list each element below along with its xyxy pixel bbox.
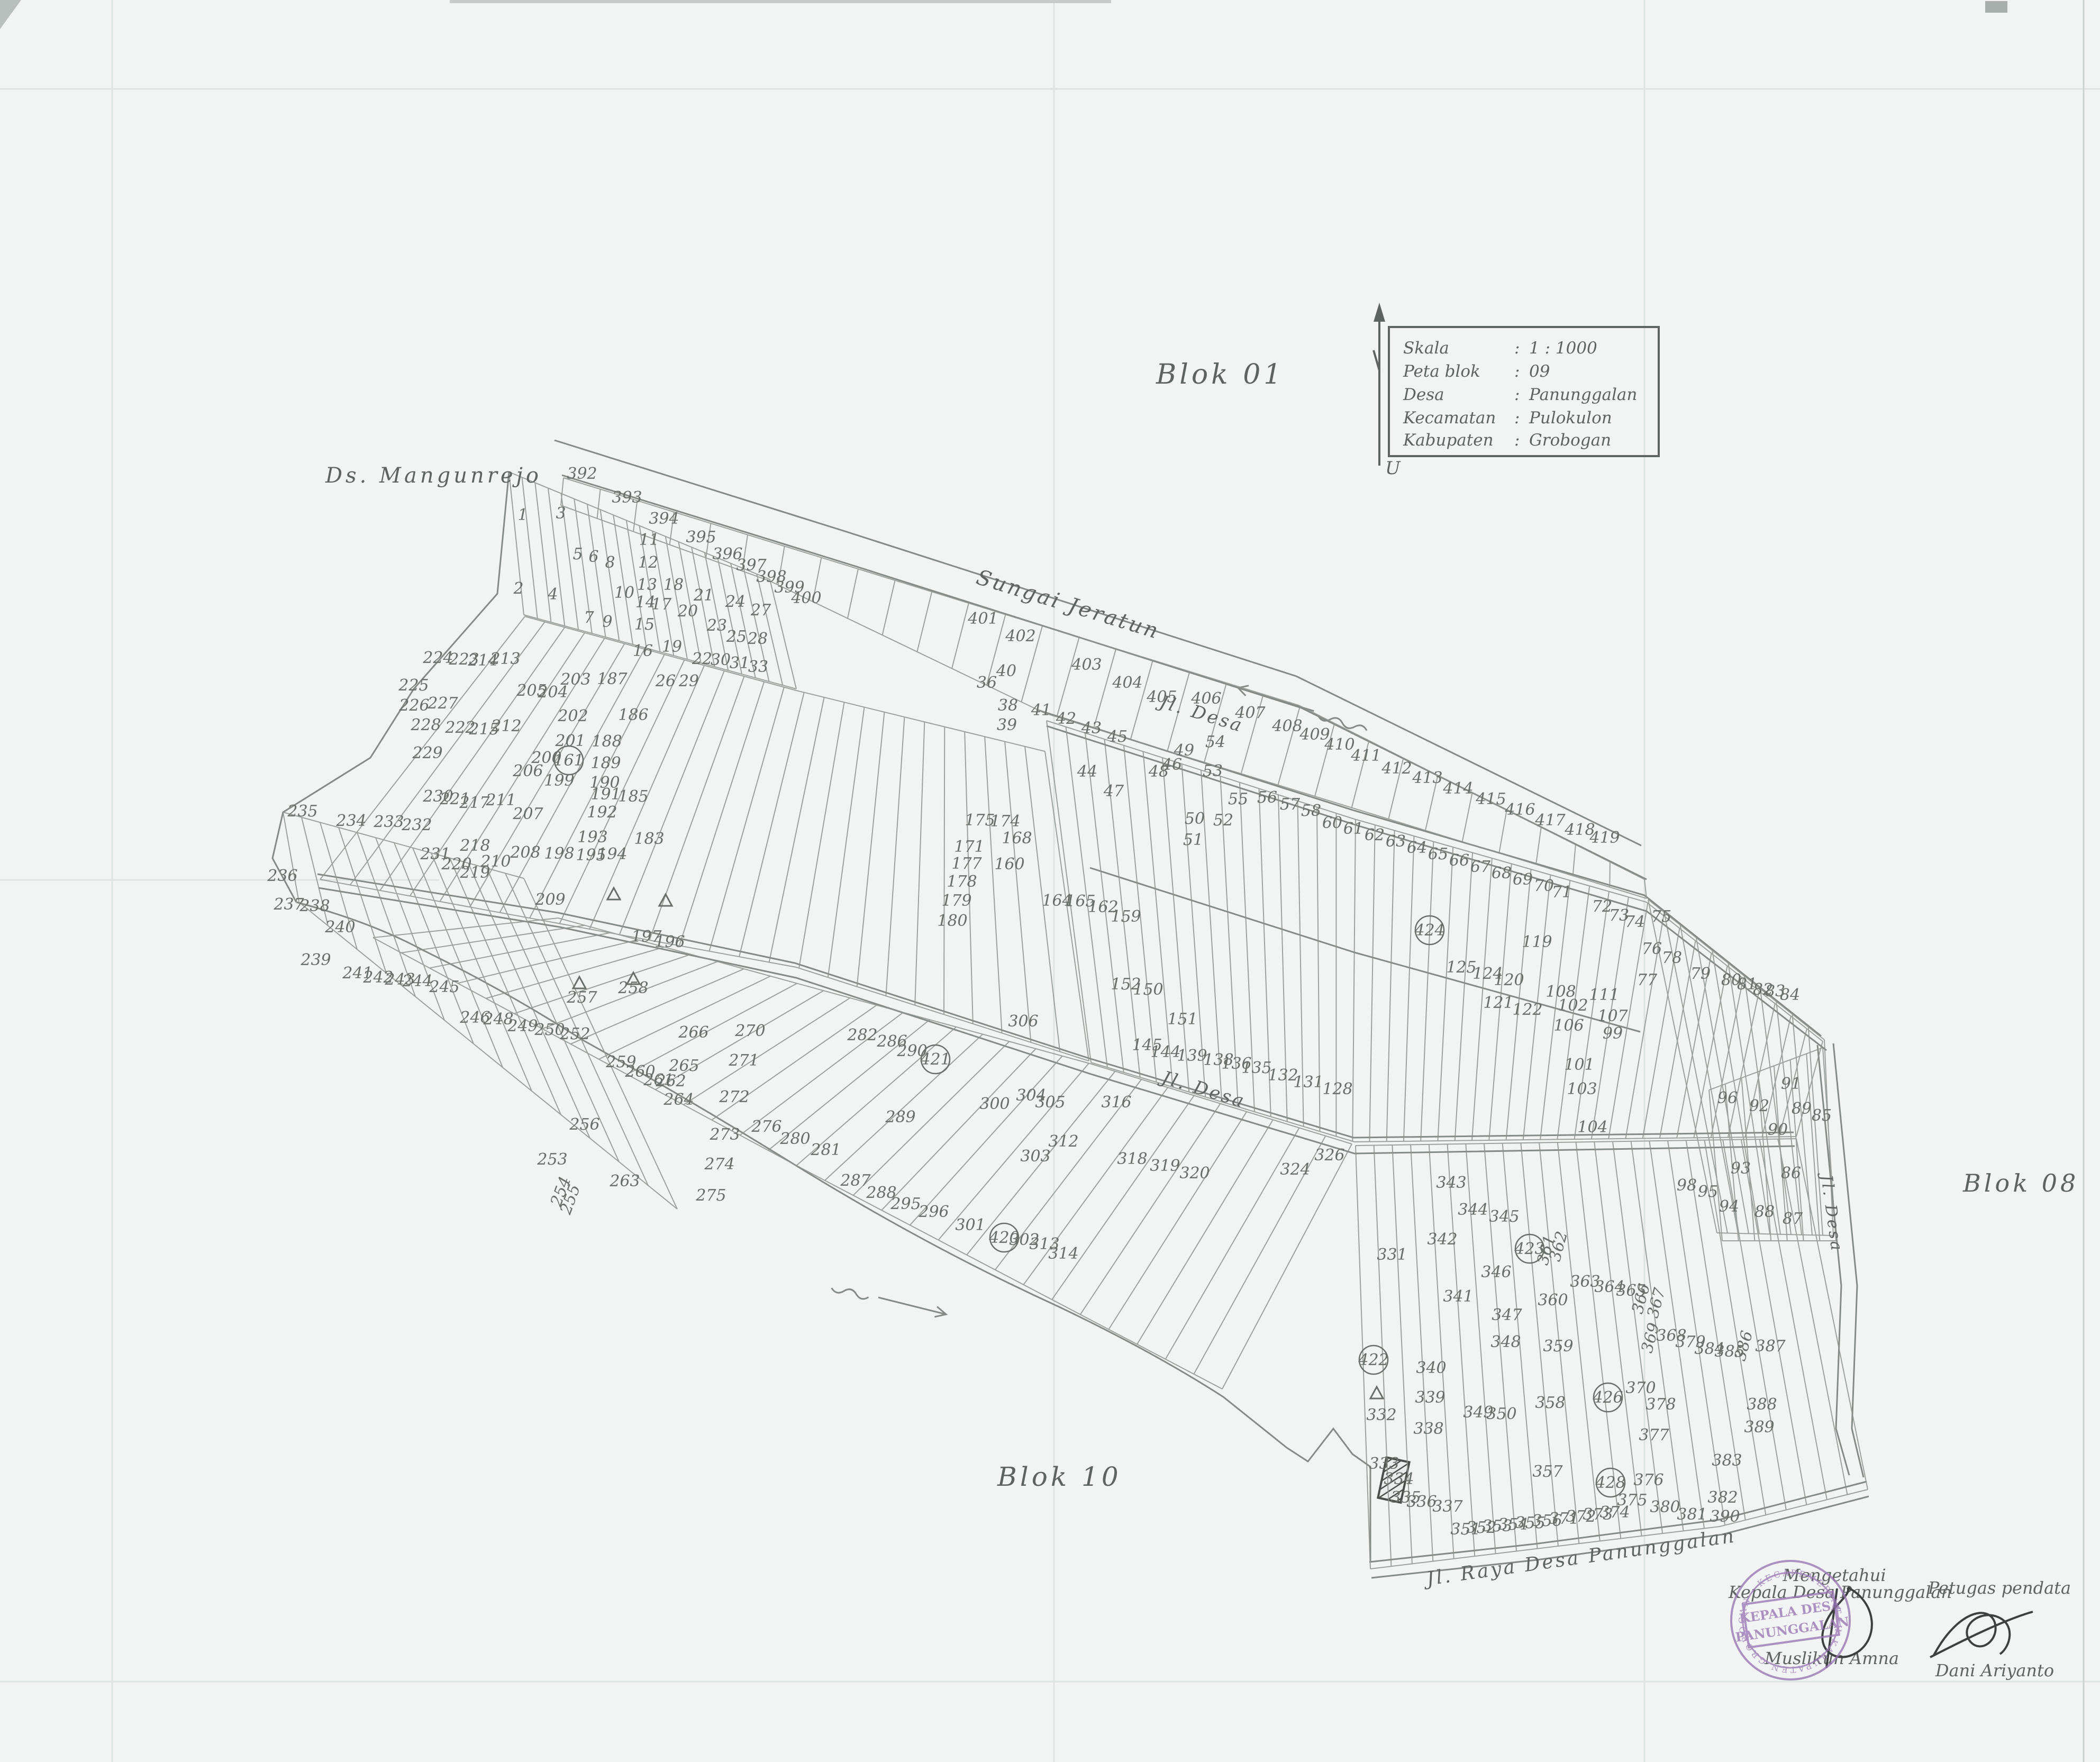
legend-value-desa: Panunggalan xyxy=(1529,385,1637,404)
parcel-number: 312 xyxy=(1048,1132,1078,1151)
parcel-number: 256 xyxy=(569,1115,599,1134)
parcel-number: 70 xyxy=(1534,877,1554,895)
parcel-number: 189 xyxy=(590,754,621,773)
parcel-number: 1 xyxy=(517,506,528,524)
parcel-number: 238 xyxy=(299,897,330,915)
parcel-number: 350 xyxy=(1486,1405,1516,1423)
parcel-number: 403 xyxy=(1071,656,1102,674)
parcel-number: 380 xyxy=(1650,1498,1680,1516)
parcel-number: 47 xyxy=(1103,782,1124,801)
parcel-number: 24 xyxy=(725,593,746,611)
parcel-number: 54 xyxy=(1205,733,1225,751)
legend-value-kabupaten: Grobogan xyxy=(1529,431,1611,450)
parcel-number: 2 xyxy=(513,579,523,598)
parcel-number: 15 xyxy=(634,615,654,634)
parcel-number: 387 xyxy=(1755,1337,1786,1356)
parcel-number: 411 xyxy=(1350,747,1381,765)
parcel-number: 27 xyxy=(750,601,771,620)
parcel-number: 265 xyxy=(668,1057,699,1075)
parcel-number: 48 xyxy=(1148,762,1169,781)
parcel-number: 78 xyxy=(1662,949,1682,967)
parcel-number: 348 xyxy=(1490,1333,1521,1351)
parcel-number: 191 xyxy=(590,785,621,804)
parcel-number: 236 xyxy=(267,867,297,885)
parcel-number: 180 xyxy=(937,912,967,930)
parcel-number: 101 xyxy=(1564,1056,1594,1074)
legend-colon: : xyxy=(1514,385,1520,404)
parcel-number: 93 xyxy=(1731,1159,1751,1178)
parcel-number: 239 xyxy=(300,951,331,969)
parcel-number: 258 xyxy=(617,979,648,997)
legend-label: Kecamatan xyxy=(1403,408,1496,428)
parcel-number: 207 xyxy=(512,805,543,823)
parcel-number: 55 xyxy=(1228,790,1248,809)
parcel-number: 106 xyxy=(1553,1016,1584,1035)
parcel-number: 138 xyxy=(1203,1051,1233,1069)
parcel-number: 53 xyxy=(1203,762,1223,780)
parcel-number: 201 xyxy=(554,732,585,750)
parcel-number: 305 xyxy=(1035,1093,1065,1112)
parcel-number: 198 xyxy=(544,844,574,863)
parcel-number: 377 xyxy=(1639,1426,1669,1445)
parcel-number: 152 xyxy=(1111,975,1141,994)
parcel-number: 359 xyxy=(1543,1337,1573,1356)
parcel-number: 273 xyxy=(709,1125,740,1144)
parcel-number: 90 xyxy=(1768,1121,1788,1139)
parcel-number: 381 xyxy=(1677,1505,1707,1524)
parcel-number: 357 xyxy=(1532,1463,1563,1481)
legend-label: Desa xyxy=(1403,385,1444,404)
parcel-number: 424 xyxy=(1414,921,1444,940)
region-label-blok-10: Blok 10 xyxy=(997,1461,1122,1492)
parcel-number: 187 xyxy=(597,670,628,688)
parcel-number: 393 xyxy=(612,488,642,507)
parcel-number: 77 xyxy=(1637,971,1658,989)
parcel-number: 122 xyxy=(1512,1001,1542,1019)
parcel-number: 124 xyxy=(1472,965,1503,983)
parcel-number: 408 xyxy=(1271,717,1302,735)
parcel-number: 320 xyxy=(1179,1164,1210,1183)
parcel-number: 410 xyxy=(1324,735,1354,754)
parcel-number: 421 xyxy=(920,1050,950,1069)
region-label-blok-01: Blok 01 xyxy=(1156,359,1284,390)
parcel-number: 394 xyxy=(649,510,679,528)
parcel-number: 347 xyxy=(1492,1306,1522,1324)
parcel-number: 426 xyxy=(1592,1388,1623,1407)
parcel-number: 5 xyxy=(572,545,583,564)
parcel-number: 296 xyxy=(918,1203,949,1221)
parcel-number: 39 xyxy=(997,716,1017,734)
parcel-number: 3 xyxy=(556,504,566,523)
parcel-number: 375 xyxy=(1617,1491,1647,1510)
parcel-number: 417 xyxy=(1534,811,1566,830)
parcel-number: 245 xyxy=(429,978,459,996)
legend-colon: : xyxy=(1514,431,1520,450)
region-label-ds-mangunrejo: Ds. Mangunrejo xyxy=(325,464,542,488)
parcel-number: 7 xyxy=(584,608,594,627)
parcel-number: 168 xyxy=(1002,829,1032,848)
parcel-number: 228 xyxy=(410,716,441,734)
legend-colon: : xyxy=(1514,339,1520,358)
parcel-number: 389 xyxy=(1744,1418,1774,1437)
parcel-number: 314 xyxy=(1048,1245,1078,1263)
parcel-number: 4 xyxy=(547,585,558,604)
parcel-number: 23 xyxy=(706,616,727,635)
paper-background xyxy=(0,0,2100,1762)
parcel-number: 383 xyxy=(1712,1451,1742,1470)
parcel-number: 183 xyxy=(634,830,664,848)
parcel-number: 71 xyxy=(1552,883,1572,902)
parcel-number: 186 xyxy=(618,706,648,724)
parcel-number: 45 xyxy=(1107,728,1128,746)
legend-colon: : xyxy=(1514,408,1520,428)
parcel-number: 197 xyxy=(631,928,662,946)
region-label-blok-08: Blok 08 xyxy=(1962,1169,2079,1197)
scanned-map-page: 1234567891011121314151617181920212223242… xyxy=(0,0,2100,1762)
parcel-number: 26 xyxy=(655,672,676,691)
parcel-number: 337 xyxy=(1432,1497,1463,1516)
parcel-number: 332 xyxy=(1366,1406,1396,1424)
parcel-number: 404 xyxy=(1112,674,1142,692)
parcel-number: 66 xyxy=(1449,851,1469,870)
parcel-number: 343 xyxy=(1436,1174,1466,1192)
parcel-number: 414 xyxy=(1442,779,1473,798)
parcel-number: 75 xyxy=(1651,907,1671,926)
parcel-number: 165 xyxy=(1065,892,1095,911)
parcel-number: 301 xyxy=(955,1216,985,1234)
parcel-number: 44 xyxy=(1077,762,1097,781)
parcel-number: 360 xyxy=(1538,1291,1568,1310)
parcel-number: 249 xyxy=(507,1017,538,1036)
parcel-number: 415 xyxy=(1475,790,1506,809)
parcel-number: 21 xyxy=(693,586,714,605)
parcel-number: 185 xyxy=(618,787,648,806)
parcel-number: 281 xyxy=(810,1141,841,1159)
parcel-number: 306 xyxy=(1008,1012,1038,1031)
parcel-number: 177 xyxy=(951,855,982,873)
parcel-number: 111 xyxy=(1589,986,1619,1004)
parcel-number: 300 xyxy=(979,1095,1010,1113)
parcel-number: 18 xyxy=(663,576,684,594)
parcel-number: 401 xyxy=(967,610,998,628)
parcel-number: 231 xyxy=(420,845,450,864)
parcel-number: 103 xyxy=(1567,1080,1597,1098)
parcel-number: 38 xyxy=(998,696,1018,715)
parcel-number: 175 xyxy=(965,811,995,830)
parcel-number: 107 xyxy=(1597,1007,1628,1025)
parcel-number: 79 xyxy=(1690,965,1711,983)
parcel-number: 402 xyxy=(1005,627,1035,646)
parcel-number: 8 xyxy=(605,553,615,572)
parcel-number: 40 xyxy=(996,662,1016,680)
legend-label: Skala xyxy=(1403,339,1449,358)
parcel-number: 87 xyxy=(1783,1210,1803,1228)
parcel-number: 178 xyxy=(947,873,977,891)
parcel-number: 145 xyxy=(1132,1036,1162,1055)
scan-edge-artifact xyxy=(450,0,1111,3)
parcel-number: 341 xyxy=(1443,1287,1473,1306)
parcel-number: 58 xyxy=(1301,802,1321,820)
parcel-number: 226 xyxy=(398,696,429,715)
parcel-number: 86 xyxy=(1781,1164,1801,1183)
parcel-number: 202 xyxy=(557,707,588,725)
parcel-number: 295 xyxy=(890,1195,921,1213)
parcel-number: 61 xyxy=(1343,820,1363,838)
parcel-number: 92 xyxy=(1749,1097,1769,1115)
parcel-number: 94 xyxy=(1719,1197,1739,1216)
parcel-number: 276 xyxy=(751,1118,781,1136)
parcel-number: 50 xyxy=(1185,810,1205,828)
parcel-number: 52 xyxy=(1213,811,1233,830)
parcel-number: 303 xyxy=(1020,1147,1050,1166)
legend-value-kecamatan: Pulokulon xyxy=(1529,408,1612,428)
legend-colon: : xyxy=(1514,362,1520,381)
parcel-number: 413 xyxy=(1412,769,1442,787)
parcel-number: 390 xyxy=(1710,1507,1740,1526)
parcel-number: 28 xyxy=(747,630,768,648)
parcel-number: 60 xyxy=(1322,814,1342,832)
parcel-number: 125 xyxy=(1446,958,1476,977)
parcel-number: 132 xyxy=(1268,1066,1298,1085)
parcel-number: 316 xyxy=(1101,1093,1131,1112)
parcel-number: 224 xyxy=(422,649,453,667)
parcel-number: 63 xyxy=(1386,832,1406,851)
parcel-number: 282 xyxy=(847,1026,877,1045)
parcel-number: 36 xyxy=(977,674,997,692)
parcel-number: 195 xyxy=(576,846,606,865)
parcel-number: 209 xyxy=(534,891,565,909)
legend-value-skala: 1 : 1000 xyxy=(1529,339,1597,358)
parcel-number: 342 xyxy=(1427,1230,1457,1249)
parcel-number: 20 xyxy=(677,602,698,621)
parcel-number: 65 xyxy=(1428,845,1448,864)
parcel-number: 91 xyxy=(1781,1075,1801,1093)
signature-right-name: Dani Ariyanto xyxy=(1935,1660,2054,1681)
parcel-number: 108 xyxy=(1546,983,1576,1001)
parcel-number: 382 xyxy=(1707,1488,1738,1507)
parcel-number: 400 xyxy=(790,589,821,607)
parcel-number: 31 xyxy=(730,654,750,673)
parcel-number: 334 xyxy=(1384,1470,1414,1488)
north-label: U xyxy=(1385,458,1401,479)
parcel-number: 121 xyxy=(1483,994,1513,1012)
parcel-number: 119 xyxy=(1522,933,1552,951)
parcel-number: 266 xyxy=(678,1023,708,1042)
parcel-number: 88 xyxy=(1754,1203,1775,1221)
parcel-number: 206 xyxy=(512,762,543,780)
parcel-number: 51 xyxy=(1183,831,1203,849)
parcel-number: 139 xyxy=(1177,1047,1207,1065)
parcel-number: 62 xyxy=(1365,826,1385,844)
parcel-number: 192 xyxy=(587,803,617,822)
parcel-number: 338 xyxy=(1413,1420,1443,1438)
parcel-number: 128 xyxy=(1322,1080,1352,1098)
parcel-number: 19 xyxy=(662,638,682,656)
parcel-number: 222 xyxy=(444,719,475,737)
parcel-number: 420 xyxy=(988,1229,1019,1247)
parcel-number: 41 xyxy=(1031,701,1051,720)
parcel-number: 68 xyxy=(1492,864,1512,883)
parcel-number: 89 xyxy=(1792,1100,1812,1118)
parcel-number: 151 xyxy=(1167,1010,1197,1029)
parcel-number: 324 xyxy=(1280,1160,1310,1179)
parcel-number: 392 xyxy=(567,465,597,483)
parcel-number: 225 xyxy=(398,676,429,695)
parcel-number: 428 xyxy=(1595,1474,1625,1492)
parcel-number: 99 xyxy=(1603,1024,1623,1043)
legend-value-peta-blok: 09 xyxy=(1529,362,1550,381)
parcel-number: 326 xyxy=(1314,1146,1344,1165)
parcel-number: 358 xyxy=(1535,1394,1565,1412)
parcel-number: 161 xyxy=(553,751,584,770)
parcel-number: 339 xyxy=(1415,1388,1445,1407)
parcel-number: 9 xyxy=(602,613,612,631)
parcel-number: 11 xyxy=(639,531,659,549)
parcel-number: 280 xyxy=(779,1130,810,1148)
parcel-number: 263 xyxy=(609,1172,640,1191)
parcel-number: 422 xyxy=(1358,1351,1388,1369)
parcel-number: 252 xyxy=(559,1025,590,1043)
parcel-number: 230 xyxy=(422,787,453,806)
parcel-number: 395 xyxy=(686,528,716,547)
parcel-number: 16 xyxy=(633,642,653,660)
parcel-number: 84 xyxy=(1780,986,1800,1004)
parcel-number: 253 xyxy=(537,1150,567,1169)
parcel-number: 22 xyxy=(692,650,712,668)
parcel-number: 346 xyxy=(1481,1263,1511,1282)
parcel-number: 270 xyxy=(734,1022,765,1040)
parcel-number: 10 xyxy=(614,584,634,602)
parcel-number: 340 xyxy=(1416,1359,1446,1377)
parcel-number: 85 xyxy=(1812,1106,1832,1125)
parcel-number: 96 xyxy=(1717,1089,1738,1107)
cadastral-map-canvas: 1234567891011121314151617181920212223242… xyxy=(0,0,2100,1762)
legend-label: Peta blok xyxy=(1403,362,1480,381)
parcel-number: 229 xyxy=(412,744,442,762)
parcel-number: 6 xyxy=(588,548,598,566)
parcel-number: 30 xyxy=(711,651,731,669)
parcel-number: 218 xyxy=(459,837,490,855)
parcel-number: 319 xyxy=(1150,1157,1180,1175)
parcel-number: 160 xyxy=(994,855,1024,874)
parcel-number: 257 xyxy=(566,988,597,1007)
parcel-number: 318 xyxy=(1117,1150,1147,1168)
parcel-number: 17 xyxy=(651,595,672,614)
parcel-number: 234 xyxy=(335,812,366,830)
parcel-number: 33 xyxy=(748,658,768,676)
parcel-number: 378 xyxy=(1646,1395,1676,1414)
parcel-number: 274 xyxy=(704,1155,734,1174)
parcel-number: 331 xyxy=(1377,1246,1407,1264)
parcel-number: 264 xyxy=(663,1091,694,1109)
parcel-number: 69 xyxy=(1513,870,1533,889)
parcel-number: 289 xyxy=(885,1108,915,1127)
parcel-number: 171 xyxy=(954,838,984,856)
parcel-number: 376 xyxy=(1633,1471,1663,1489)
parcel-number: 74 xyxy=(1625,913,1645,931)
parcel-number: 67 xyxy=(1470,858,1491,876)
scan-mark-artifact xyxy=(1985,1,2007,13)
parcel-number: 275 xyxy=(695,1186,726,1205)
parcel-number: 29 xyxy=(678,672,699,691)
parcel-number: 233 xyxy=(373,813,404,831)
parcel-number: 98 xyxy=(1677,1176,1697,1195)
parcel-number: 56 xyxy=(1257,788,1277,807)
parcel-number: 235 xyxy=(287,802,317,821)
parcel-number: 211 xyxy=(485,791,516,810)
parcel-number: 42 xyxy=(1056,710,1076,728)
parcel-number: 272 xyxy=(719,1088,749,1106)
parcel-number: 57 xyxy=(1280,795,1301,814)
parcel-number: 208 xyxy=(510,843,540,862)
parcel-number: 388 xyxy=(1747,1395,1777,1414)
parcel-number: 25 xyxy=(726,628,747,646)
parcel-number: 244 xyxy=(402,972,432,991)
parcel-number: 416 xyxy=(1504,801,1535,819)
parcel-number: 232 xyxy=(401,816,432,834)
parcel-number: 188 xyxy=(592,732,622,751)
parcel-number: 412 xyxy=(1381,759,1412,778)
parcel-number: 227 xyxy=(427,694,458,713)
parcel-number: 370 xyxy=(1625,1379,1656,1397)
parcel-number: 104 xyxy=(1577,1118,1607,1137)
parcel-number: 345 xyxy=(1489,1207,1519,1226)
parcel-number: 344 xyxy=(1458,1201,1488,1219)
parcel-number: 240 xyxy=(324,918,355,937)
legend-label: Kabupaten xyxy=(1403,431,1494,450)
parcel-number: 205 xyxy=(516,682,547,700)
parcel-number: 64 xyxy=(1407,839,1427,857)
parcel-number: 43 xyxy=(1081,719,1102,738)
parcel-number: 193 xyxy=(577,828,607,847)
signature-right-title: Petugas pendata xyxy=(1928,1578,2071,1598)
parcel-number: 179 xyxy=(941,892,971,910)
parcel-number: 76 xyxy=(1642,940,1662,958)
parcel-number: 271 xyxy=(728,1051,759,1070)
parcel-number: 12 xyxy=(638,553,658,572)
parcel-number: 419 xyxy=(1589,829,1620,847)
parcel-number: 49 xyxy=(1174,741,1194,760)
parcel-number: 13 xyxy=(637,576,657,594)
parcel-number: 95 xyxy=(1698,1183,1718,1201)
